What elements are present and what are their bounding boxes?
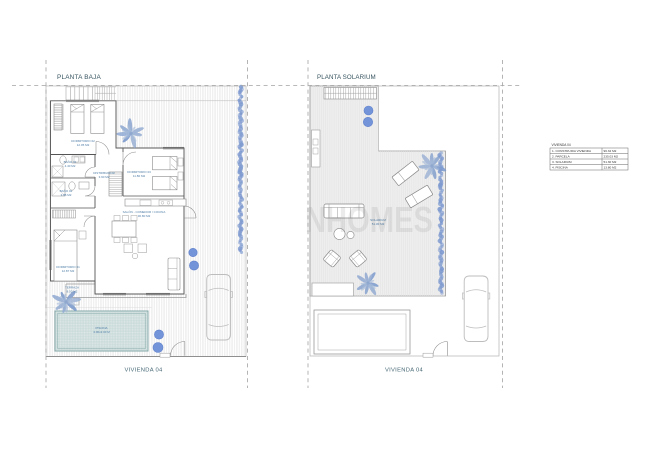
svg-text:VIVIENDA 04: VIVIENDA 04 (552, 143, 571, 147)
svg-text:12.05 M2: 12.05 M2 (77, 143, 90, 147)
svg-text:NHOMES: NHOMES (305, 199, 433, 240)
svg-text:235.03 M2: 235.03 M2 (604, 155, 619, 159)
svg-text:4.40 M2: 4.40 M2 (65, 164, 76, 168)
svg-text:VIVIENDA 04: VIVIENDA 04 (124, 368, 163, 374)
svg-text:4.00x2.00 M: 4.00x2.00 M (93, 330, 110, 334)
svg-text:8.50 M2: 8.50 M2 (67, 289, 78, 293)
svg-text:3. SOLARIUM: 3. SOLARIUM (552, 160, 572, 164)
svg-text:30.80 M2: 30.80 M2 (138, 214, 151, 218)
svg-text:4. PISCINA: 4. PISCINA (552, 166, 569, 170)
svg-text:1. CONSTRUIDA VIVIENDA: 1. CONSTRUIDA VIVIENDA (552, 149, 592, 153)
svg-text:13.80 M2: 13.80 M2 (604, 166, 617, 170)
svg-text:2. PARCELA: 2. PARCELA (552, 155, 571, 159)
svg-text:3.90 M2: 3.90 M2 (99, 175, 110, 179)
svg-text:3.85 M2: 3.85 M2 (61, 193, 72, 197)
svg-text:12.87 M2: 12.87 M2 (62, 269, 75, 273)
svg-text:96.32 M2: 96.32 M2 (604, 149, 617, 153)
svg-text:PLANTA SOLARIUM: PLANTA SOLARIUM (317, 74, 376, 81)
svg-text:VIVIENDA 04: VIVIENDA 04 (385, 368, 424, 374)
svg-text:51.30 M2: 51.30 M2 (604, 160, 617, 164)
svg-text:11.80 M2: 11.80 M2 (133, 174, 146, 178)
svg-text:PLANTA BAJA: PLANTA BAJA (57, 74, 102, 81)
